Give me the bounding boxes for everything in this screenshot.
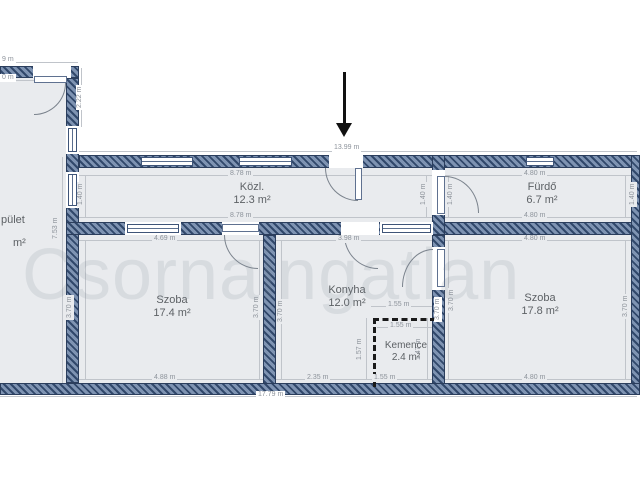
window-kozl-2 [239,157,292,166]
watermark: Csornaingatlan [22,234,520,316]
dim-line [0,396,637,397]
door-leaf-szoba-left [222,224,259,232]
wall-main-bottom [0,383,640,395]
dim-label-furdo-left: 1.40 m [447,182,455,207]
window-furdo [526,157,554,166]
dim-label-kozl-right: 1.40 m [420,182,428,207]
dim-label-szoba-right-right: 3.70 m [622,294,630,319]
dim-label-furdo-top: 4.80 m [522,170,547,178]
door-leaf-left-building [34,76,67,83]
dim-label-kemence-inner: 1.55 m [388,322,413,330]
room-label-kemence-area: 2.4 m² [367,352,445,364]
dim-label-konyha-bottom-l: 2.35 m [305,374,330,382]
entrance-arrow-head-icon [336,123,352,137]
dim-label-szoba-right-bottom: 4.80 m [522,374,547,382]
dim-label-szoba-right-top: 4.80 m [522,235,547,243]
entrance-arrow-shaft [343,72,346,124]
door-leaf-furdo [437,176,445,214]
dim-label-bottom-overall: 17.79 m [256,391,285,399]
dim-label-kozl-top: 8.78 m [228,170,253,178]
window-konyha [382,224,431,233]
dim-label-szoba-left-bottom: 4.88 m [152,374,177,382]
room-label-kozl-name: Közl. [202,181,302,194]
dim-line [79,217,432,218]
dim-label-kemence-left: 1.57 m [356,337,364,362]
room-label-kemence-name: Kemence [367,340,445,352]
floor-plan: 13.99 m 9 m 0 m 8.78 m 8.78 m 4.80 m 4.8… [0,0,640,480]
dim-label-left-cut-bottom: 0 m [0,74,16,82]
dim-label-kozl-left: 1.40 m [77,182,85,207]
room-label-kozl-area: 12.3 m² [202,194,302,207]
dim-label-left-door-height: 2.22 m [76,85,84,110]
dim-line [85,176,86,217]
dim-label-furdo-right: 1.40 m [629,182,637,207]
window-szoba-left [127,224,179,233]
dim-label-furdo-bottom: 4.80 m [522,212,547,220]
dim-label-left-cut-top: 9 m [0,56,16,64]
room-label-left-building-name: pület [1,214,25,227]
dim-line [79,175,432,176]
dim-line [625,176,626,217]
window-kozl-left-door [68,174,77,206]
dim-label-konyha-bottom-r: 1.55 m [372,374,397,382]
dim-label-kozl-bottom: 8.78 m [228,212,253,220]
window-kozl-1 [141,157,193,166]
window-left-wall [68,128,77,152]
room-label-furdo-area: 6.7 m² [492,194,592,207]
dim-label-top-overall: 13.99 m [332,144,361,152]
room-label-furdo-name: Fürdő [492,181,592,194]
opening-entrance [329,155,363,168]
